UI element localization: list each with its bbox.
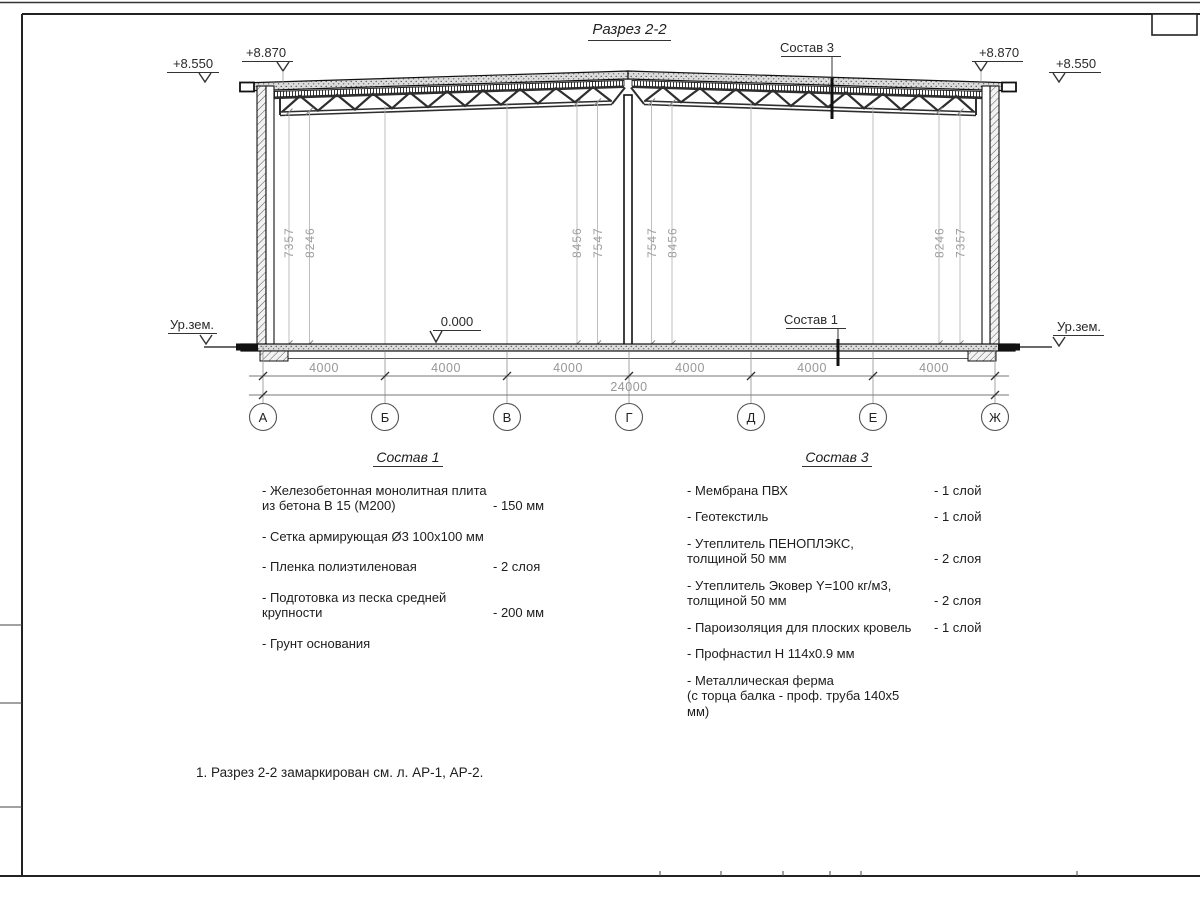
item-name: - Мембрана ПВХ [687, 483, 788, 499]
elevation-mark-right-outer: +8.550 [1049, 56, 1101, 82]
item-value: - 1 слой [934, 620, 982, 636]
ground-line-right [998, 344, 1052, 351]
item-name: - Геотекстиль [687, 509, 768, 525]
axis-label-a: А [259, 410, 268, 425]
ground-label-left: Ур.зем. [168, 317, 217, 344]
zero-level-mark: 0.000 [430, 314, 481, 342]
center-column [624, 95, 632, 345]
elev-right-outer-label: +8.550 [1056, 56, 1096, 71]
axis-label-v: В [503, 410, 512, 425]
composition-3: Состав 3 - Мембрана ПВХ - 1 слой - Геоте… [687, 450, 987, 730]
level-arrow-icon [1053, 337, 1065, 346]
axis-label-zh: Ж [989, 410, 1001, 425]
level-arrow-icon [975, 62, 987, 71]
roof-slab [240, 71, 1016, 92]
composition-3-title: Состав 3 [802, 449, 871, 467]
floor-callout: Состав 1 [784, 312, 846, 366]
list-item: - Подготовка из песка средней крупности … [262, 590, 554, 621]
list-item: - Мембрана ПВХ - 1 слой [687, 483, 987, 499]
list-item: - Утеплитель Эковер Y=100 кг/м3, толщино… [687, 578, 987, 609]
foundation-left [260, 351, 288, 361]
floor-slab [241, 344, 1015, 361]
list-item: - Утеплитель ПЕНОПЛЭКС, толщиной 50 мм -… [687, 536, 987, 567]
foundation-right [968, 351, 996, 361]
vdim-5: 7547 [645, 227, 659, 258]
level-arrow-icon [199, 73, 211, 82]
composition-3-title-wrap: Состав 3 [687, 450, 987, 466]
wall-left [257, 86, 274, 345]
zero-level-label: 0.000 [441, 314, 474, 329]
elev-left-outer-label: +8.550 [173, 56, 213, 71]
item-name: - Профнастил Н 114х0.9 мм [687, 646, 855, 662]
item-value: - 2 слоя [934, 551, 981, 567]
axis-label-e: Е [869, 410, 878, 425]
level-arrow-icon [277, 62, 289, 71]
section-drawing: 7357 8246 8456 7547 7547 8456 8246 7357 … [0, 0, 1200, 900]
vdim-6: 8456 [666, 227, 680, 258]
item-name: - Грунт основания [262, 636, 370, 652]
composition-1-title-wrap: Состав 1 [262, 450, 554, 466]
item-name: - Пароизоляция для плоских кровель [687, 620, 911, 636]
level-arrow-icon [1053, 73, 1065, 82]
eave-beam-right [1002, 83, 1016, 92]
bay-dim-2: 4000 [431, 361, 461, 375]
bay-dim-5: 4000 [797, 361, 827, 375]
item-name: - Железобетонная монолитная плита из бет… [262, 483, 487, 514]
floor-callout-label: Состав 1 [784, 312, 838, 327]
vdim-2: 8246 [303, 227, 317, 258]
item-value: - 150 мм [493, 498, 544, 514]
roof-callout-label: Состав 3 [780, 40, 834, 55]
list-item: - Металлическая ферма (с торца балка - п… [687, 673, 987, 720]
composition-1: Состав 1 - Железобетонная монолитная пли… [262, 450, 554, 666]
item-name: - Утеплитель Эковер Y=100 кг/м3, толщино… [687, 578, 891, 609]
item-name: - Сетка армирующая Ø3 100х100 мм [262, 529, 484, 545]
vdim-4: 7547 [591, 227, 605, 258]
ground-left-label: Ур.зем. [170, 317, 214, 332]
list-item: - Профнастил Н 114х0.9 мм [687, 646, 987, 662]
bay-dim-6: 4000 [919, 361, 949, 375]
level-arrow-icon [430, 331, 442, 342]
list-item: - Сетка армирующая Ø3 100х100 мм [262, 529, 554, 545]
bay-dim-3: 4000 [553, 361, 583, 375]
list-item: - Грунт основания [262, 636, 554, 652]
ground-label-right: Ур.зем. [1053, 319, 1104, 346]
list-item: - Железобетонная монолитная плита из бет… [262, 483, 554, 514]
level-arrow-icon [200, 335, 212, 344]
item-value: - 1 слой [934, 509, 982, 525]
vdim-1: 7357 [282, 227, 296, 258]
item-name: - Утеплитель ПЕНОПЛЭКС, толщиной 50 мм [687, 536, 854, 567]
drawing-note: 1. Разрез 2-2 замаркирован см. л. АР-1, … [196, 765, 483, 780]
item-name: - Пленка полиэтиленовая [262, 559, 417, 575]
ground-line-left [204, 344, 258, 351]
elevation-mark-right-inner: +8.870 [972, 45, 1023, 82]
item-value: - 1 слой [934, 483, 982, 499]
item-name: - Металлическая ферма (с торца балка - п… [687, 673, 919, 720]
item-value: - 200 мм [493, 605, 544, 621]
sheet-frame [0, 3, 1200, 877]
eave-beam-left [240, 83, 254, 92]
item-value: - 2 слоя [934, 593, 981, 609]
bay-dim-4: 4000 [675, 361, 705, 375]
section-title: Разрез 2-2 [588, 21, 670, 41]
dimension-extension-lines [263, 346, 995, 403]
elev-left-inner-label: +8.870 [246, 45, 286, 60]
axis-bubbles: А Б В Г Д Е Ж [250, 404, 1009, 431]
bay-dim-1: 4000 [309, 361, 339, 375]
axis-label-b: Б [381, 410, 390, 425]
composition-1-title: Состав 1 [373, 449, 442, 467]
elevation-mark-left-inner: +8.870 [242, 45, 293, 82]
frame-corner-box [1152, 14, 1197, 35]
drawing-sheet: 7357 8246 8456 7547 7547 8456 8246 7357 … [0, 0, 1200, 900]
section-title-wrap: Разрез 2-2 [557, 21, 702, 39]
item-value: - 2 слоя [493, 559, 540, 575]
list-item: - Геотекстиль - 1 слой [687, 509, 987, 525]
wall-right [982, 86, 999, 345]
elevation-mark-left-outer: +8.550 [167, 56, 219, 82]
list-item: - Пленка полиэтиленовая - 2 слоя [262, 559, 554, 575]
total-dim: 24000 [610, 380, 647, 394]
axis-label-d: Д [747, 410, 756, 425]
ground-right-label: Ур.зем. [1057, 319, 1101, 334]
vdim-7: 8246 [933, 227, 947, 258]
vdim-8: 7357 [954, 227, 968, 258]
item-name: - Подготовка из песка средней крупности [262, 590, 446, 621]
axis-label-g: Г [625, 410, 632, 425]
list-item: - Пароизоляция для плоских кровель - 1 с… [687, 620, 987, 636]
vdim-3: 8456 [570, 227, 584, 258]
elev-right-inner-label: +8.870 [979, 45, 1019, 60]
